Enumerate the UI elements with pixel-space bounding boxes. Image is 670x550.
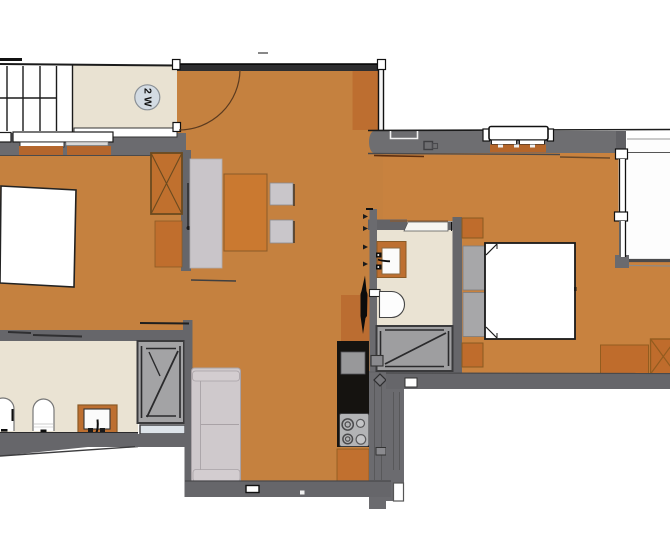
svg-text:2 W: 2 W [141, 88, 153, 107]
